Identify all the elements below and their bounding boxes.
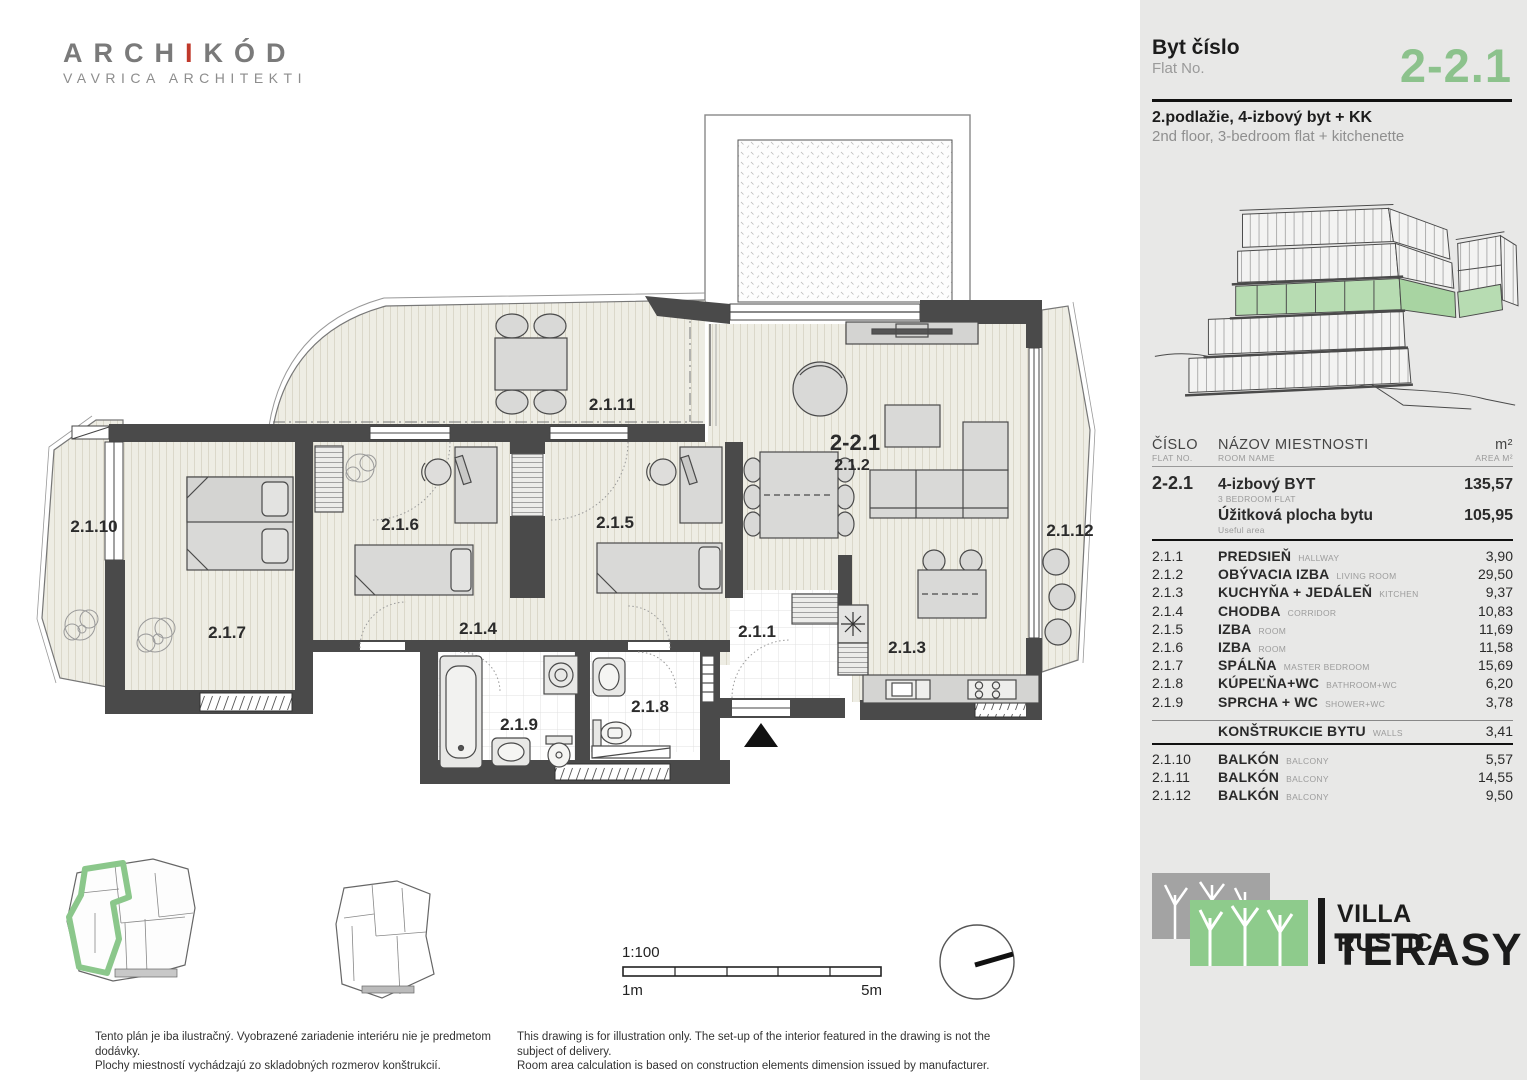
construction-label-sk: KONŠTRUKCIE BYTU: [1218, 723, 1366, 739]
table-row: 2.1.1PREDSIEŇHALLWAY3,90: [1152, 548, 1513, 566]
room-name-sk: IZBA: [1218, 621, 1251, 637]
room-name-sk: KÚPEĽŇA+WC: [1218, 675, 1319, 691]
flat-description: 2.podlažie, 4-izbový byt + KK 2nd floor,…: [1152, 108, 1515, 146]
room-label-balcony12: 2.1.12: [1046, 521, 1093, 540]
room-area: 9,50: [1441, 787, 1513, 803]
room-no: 2.1.6: [1152, 639, 1218, 655]
room-area: 11,58: [1441, 639, 1513, 655]
room-label-hall1: 2.1.1: [738, 622, 776, 641]
room-label-wc8: 2.1.8: [631, 697, 669, 716]
room-no: 2.1.7: [1152, 657, 1218, 673]
flat-row-no: 2-2.1: [1152, 473, 1218, 494]
table-row: 2.1.5IZBAROOM11,69: [1152, 621, 1513, 639]
room-name-en: BALCONY: [1286, 774, 1329, 784]
room-label-kitchen3: 2.1.3: [888, 638, 926, 657]
room-name-sk: SPRCHA + WC: [1218, 694, 1318, 710]
table-row: 2.1.11BALKÓNBALCONY14,55: [1152, 769, 1513, 787]
room-label-balcony10: 2.1.10: [70, 517, 117, 536]
room-name-sk: KUCHYŇA + JEDÁLEŇ: [1218, 584, 1372, 600]
keyplan-plain: [322, 876, 452, 1011]
room-no: 2.1.3: [1152, 584, 1218, 600]
washing-machine: [544, 656, 578, 694]
table-row: 2.1.2OBÝVACIA IZBALIVING ROOM29,50: [1152, 566, 1513, 584]
radiator: [702, 656, 714, 702]
flat-number: 2-2.1: [1400, 38, 1512, 93]
room-no: 2.1.5: [1152, 621, 1218, 637]
useful-area-label: Úžitková plocha bytu: [1218, 507, 1441, 525]
construction-area: 3,41: [1441, 723, 1513, 739]
room-area: 6,20: [1441, 675, 1513, 691]
disclaimer-sk-line1: Tento plán je iba ilustračný. Vyobrazené…: [95, 1030, 515, 1059]
room-name-en: HALLWAY: [1298, 553, 1339, 563]
room-label-corridor4: 2.1.4: [459, 619, 497, 638]
orientation-compass: [936, 920, 1020, 1004]
disclaimer-sk: Tento plán je iba ilustračný. Vyobrazené…: [95, 1030, 515, 1074]
logo-accent: I: [185, 38, 204, 68]
table-row: 2.1.10BALKÓNBALCONY5,57: [1152, 751, 1513, 769]
scale-ratio: 1:100: [622, 944, 892, 961]
col-no-sk: ČÍSLO: [1152, 437, 1218, 453]
room-no: 2.1.2: [1152, 566, 1218, 582]
room-no: 2.1.4: [1152, 603, 1218, 619]
disclaimer-en-line1: This drawing is for illustration only. T…: [517, 1030, 1017, 1059]
room-no: 2.1.11: [1152, 769, 1218, 785]
room-name-en: ROOM: [1258, 626, 1286, 636]
room-name-en: BATHROOM+WC: [1326, 680, 1397, 690]
room-name-sk: SPÁLŇA: [1218, 657, 1277, 673]
table-row: 2.1.3KUCHYŇA + JEDÁLEŇKITCHEN9,37: [1152, 584, 1513, 602]
useful-area-value: 105,95: [1441, 507, 1513, 525]
col-name-en: ROOM NAME: [1218, 453, 1441, 463]
table-row: 2.1.9SPRCHA + WCSHOWER+WC3,78: [1152, 694, 1513, 712]
armchair: [793, 362, 847, 416]
room-name-en: MASTER BEDROOM: [1284, 662, 1370, 672]
construction-label-en: WALLS: [1373, 728, 1403, 738]
logo-divider-bar: [1318, 898, 1325, 964]
room-no: 2.1.9: [1152, 694, 1218, 710]
room-area: 9,37: [1441, 584, 1513, 600]
room-name-sk: OBÝVACIA IZBA: [1218, 566, 1330, 582]
architect-logo-name: ARCHIKÓD: [63, 38, 307, 68]
room-name-sk: IZBA: [1218, 639, 1251, 655]
scale-bar-graphic: [622, 965, 888, 979]
useful-area-label-en: Useful area: [1218, 525, 1441, 535]
wardrobe: [315, 446, 343, 512]
flat-row-area: 135,57: [1441, 476, 1513, 494]
disclaimer-sk-line2: Plochy miestností vychádzajú zo skladobn…: [95, 1059, 515, 1074]
room-name-en: BALCONY: [1286, 792, 1329, 802]
table-row: 2.1.7SPÁLŇAMASTER BEDROOM15,69: [1152, 657, 1513, 675]
entrance-arrow: [744, 723, 778, 747]
table-row: 2.1.12BALKÓNBALCONY9,50: [1152, 787, 1513, 805]
col-area-en: AREA M²: [1441, 453, 1513, 463]
room-no: 2.1.12: [1152, 787, 1218, 803]
room-area: 5,57: [1441, 751, 1513, 767]
architect-logo: ARCHIKÓD VAVRICA ARCHITEKTI: [63, 38, 307, 86]
keyplan-highlighted: [55, 853, 215, 998]
project-logo: VILLA RUSTICA TERASY: [1140, 860, 1527, 1010]
room-name-sk: BALKÓN: [1218, 751, 1279, 767]
room-no: 2.1.8: [1152, 675, 1218, 691]
floor-plan: 2.1.10 2.1.7 2.1.6 2.1.11 2.1.5 2.1.4 2.…: [30, 100, 1130, 800]
room-area: 3,78: [1441, 694, 1513, 710]
project-name-line2: TERASY: [1334, 924, 1523, 976]
flat-number-label: 2-2.1: [830, 430, 880, 455]
room-name-sk: BALKÓN: [1218, 769, 1279, 785]
building-illustration: [1150, 180, 1520, 415]
scale-min-label: 1m: [622, 982, 643, 999]
header-rule: [1152, 99, 1512, 102]
flat-row-name-en: 3 BEDROOM FLAT: [1218, 494, 1441, 504]
room-area: 3,90: [1441, 548, 1513, 564]
room-area: 11,69: [1441, 621, 1513, 637]
hall-closet: [792, 594, 838, 624]
table-row: 2.1.6IZBAROOM11,58: [1152, 639, 1513, 657]
room-label-living2: 2.1.2: [834, 457, 870, 474]
coffee-table: [885, 405, 940, 447]
table-row: 2.1.4CHODBACORRIDOR10,83: [1152, 603, 1513, 621]
toilet: [546, 736, 572, 767]
architect-logo-sub: VAVRICA ARCHITEKTI: [63, 70, 307, 86]
kitchen-counter: [863, 675, 1039, 703]
room-name-en: CORRIDOR: [1288, 608, 1337, 618]
balcony-rows: 2.1.10BALKÓNBALCONY5,57 2.1.11BALKÓNBALC…: [1152, 745, 1513, 806]
double-bed: [187, 477, 293, 570]
flat-desc-en: 2nd floor, 3-bedroom flat + kitchenette: [1152, 128, 1515, 146]
col-no-en: FLAT NO.: [1152, 453, 1218, 463]
room-label-bath9: 2.1.9: [500, 715, 538, 734]
table-header: ČÍSLO NÁZOV MIESTNOSTI m² FLAT NO. ROOM …: [1152, 437, 1513, 467]
room-no: 2.1.1: [1152, 548, 1218, 564]
room-label-room5: 2.1.5: [596, 513, 634, 532]
room-no: 2.1.10: [1152, 751, 1218, 767]
room-label-terrace11: 2.1.11: [589, 395, 635, 414]
flat-row-name: 4-izbový BYT: [1218, 476, 1441, 494]
disclaimer-en-line2: Room area calculation is based on constr…: [517, 1059, 1017, 1074]
room-area: 15,69: [1441, 657, 1513, 673]
disclaimer-en: This drawing is for illustration only. T…: [517, 1030, 1017, 1074]
logo-part1: ARCH: [63, 38, 185, 68]
scale-max-label: 5m: [861, 982, 882, 999]
wc-toilet: [593, 720, 631, 746]
room-name-sk: PREDSIEŇ: [1218, 548, 1291, 564]
sidebar-header: Byt číslo Flat No. 2-2.1: [1152, 36, 1515, 78]
room-name-en: ROOM: [1258, 644, 1286, 654]
flat-summary-row: 2-2.1 4-izbový BYT 135,57 3 BEDROOM FLAT…: [1152, 467, 1513, 541]
tv-cabinet: [846, 322, 978, 344]
wc-basin: [593, 658, 625, 696]
table-row: 2.1.8KÚPEĽŇA+WCBATHROOM+WC6,20: [1152, 675, 1513, 693]
logo-part2: KÓD: [204, 38, 297, 68]
washbasin: [492, 738, 530, 766]
scale-bar: 1:100 1m 5m: [622, 944, 892, 1004]
room-name-en: LIVING ROOM: [1337, 571, 1397, 581]
room-table: ČÍSLO NÁZOV MIESTNOSTI m² FLAT NO. ROOM …: [1152, 437, 1513, 806]
col-name-sk: NÁZOV MIESTNOSTI: [1218, 437, 1441, 453]
room-name-en: BALCONY: [1286, 756, 1329, 766]
col-area-sk: m²: [1441, 437, 1513, 453]
room-label-room6: 2.1.6: [381, 515, 419, 534]
room-rows: 2.1.1PREDSIEŇHALLWAY3,90 2.1.2OBÝVACIA I…: [1152, 541, 1513, 712]
construction-row: KONŠTRUKCIE BYTUWALLS 3,41: [1152, 720, 1513, 745]
room-label-bedroom7: 2.1.7: [208, 623, 246, 642]
atrium: [705, 115, 970, 310]
room-name-en: KITCHEN: [1379, 589, 1418, 599]
room-area: 29,50: [1441, 566, 1513, 582]
bathtub: [440, 656, 482, 768]
room-name-sk: CHODBA: [1218, 603, 1281, 619]
flat-desc-sk: 2.podlažie, 4-izbový byt + KK: [1152, 108, 1515, 128]
room-area: 10,83: [1441, 603, 1513, 619]
room-name-en: SHOWER+WC: [1325, 699, 1385, 709]
room-name-sk: BALKÓN: [1218, 787, 1279, 803]
room-area: 14,55: [1441, 769, 1513, 785]
